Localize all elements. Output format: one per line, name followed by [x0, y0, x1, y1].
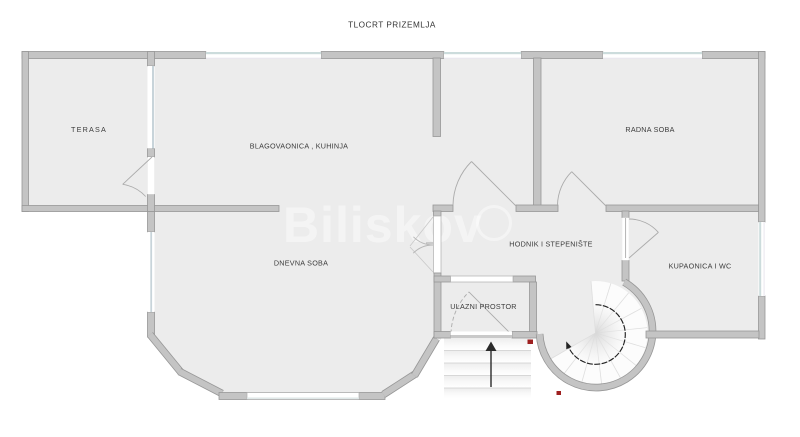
svg-text:RADNA SOBA: RADNA SOBA — [625, 125, 674, 134]
svg-text:ULAZNI PROSTOR: ULAZNI PROSTOR — [450, 302, 516, 311]
svg-text:DNEVNA SOBA: DNEVNA SOBA — [274, 259, 328, 268]
svg-text:TERASA: TERASA — [71, 125, 107, 134]
svg-text:KUPAONICA I WC: KUPAONICA I WC — [669, 262, 732, 271]
svg-text:HODNIK I STEPENIŠTE: HODNIK I STEPENIŠTE — [509, 240, 592, 249]
svg-text:BLAGOVAONICA , KUHINJA: BLAGOVAONICA , KUHINJA — [250, 142, 348, 151]
svg-text:TLOCRT PRIZEMLJA: TLOCRT PRIZEMLJA — [348, 21, 436, 30]
